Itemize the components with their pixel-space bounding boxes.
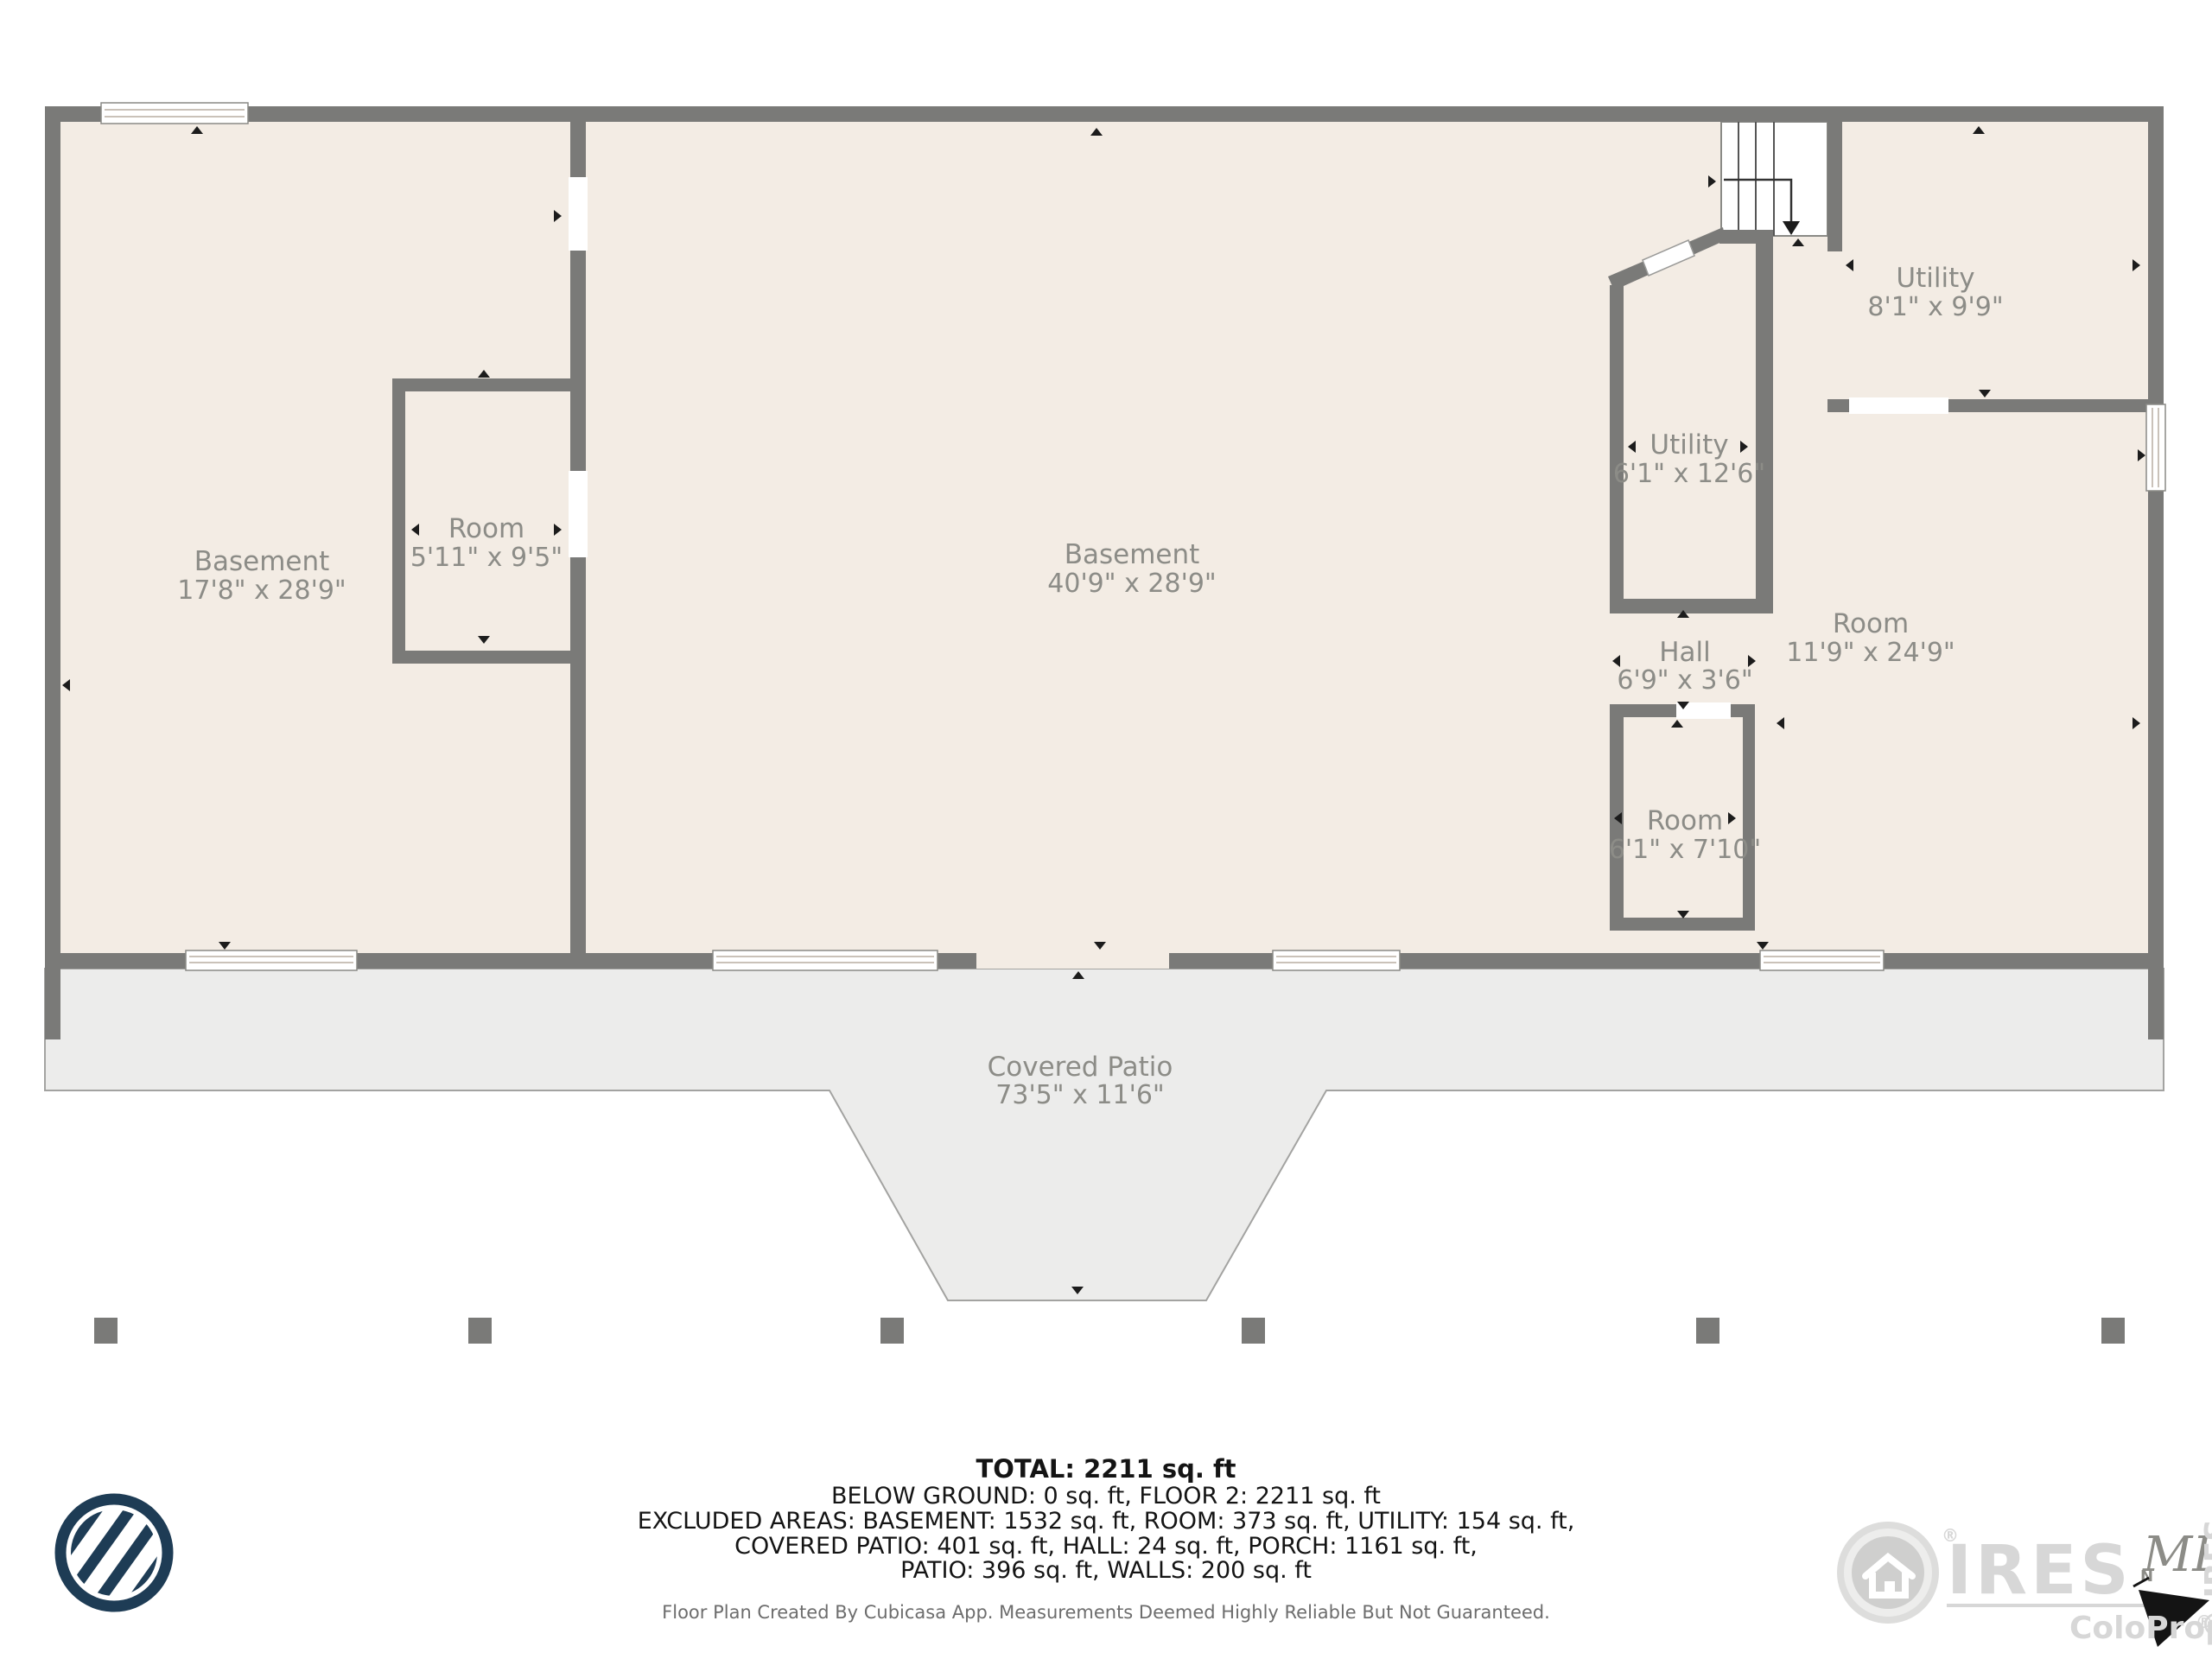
window bbox=[2146, 404, 2165, 491]
ires-logo: ® IRES MLS N ColoProperty.com ® © IRES bbox=[1840, 1519, 2212, 1647]
patio-door-opening bbox=[976, 953, 1169, 969]
room-label-dims: 73'5" x 11'6" bbox=[995, 1080, 1164, 1110]
window bbox=[713, 950, 938, 970]
covered-patio-area bbox=[45, 969, 2164, 1300]
room-label-dims: 5'11" x 9'5" bbox=[410, 543, 563, 573]
room-label-dims: 11'9" x 24'9" bbox=[1786, 638, 1955, 668]
patio-outline bbox=[45, 969, 2164, 1300]
room-label-dims: 6'1" x 7'10" bbox=[1609, 835, 1761, 865]
room-label-dims: 8'1" x 9'9" bbox=[1867, 292, 2003, 322]
area-summary: TOTAL: 2211 sq. ft BELOW GROUND: 0 sq. f… bbox=[638, 1454, 1575, 1623]
window bbox=[1760, 950, 1884, 970]
room-label-dims: 40'9" x 28'9" bbox=[1047, 569, 1216, 599]
summary-line: PATIO: 396 sq. ft, WALLS: 200 sq. ft bbox=[900, 1557, 1312, 1584]
room-label-name: Hall bbox=[1659, 637, 1711, 668]
cubicasa-logo-icon bbox=[36, 1485, 204, 1656]
room-label-dims: 6'9" x 3'6" bbox=[1617, 665, 1752, 696]
summary-footnote: Floor Plan Created By Cubicasa App. Meas… bbox=[662, 1602, 1550, 1623]
room-label-dims: 17'8" x 28'9" bbox=[177, 575, 346, 606]
floor-plan-page: Basement 17'8" x 28'9" Room 5'11" x 9'5"… bbox=[0, 0, 2212, 1659]
summary-line: COVERED PATIO: 401 sq. ft, HALL: 24 sq. … bbox=[734, 1533, 1478, 1560]
coloproperty-text: ColoProperty.com bbox=[2069, 1611, 2212, 1646]
room-label-name: Room bbox=[1647, 805, 1723, 836]
summary-line: BELOW GROUND: 0 sq. ft, FLOOR 2: 2211 sq… bbox=[831, 1483, 1381, 1510]
room-label-name: Covered Patio bbox=[988, 1052, 1173, 1083]
summary-total: TOTAL: 2211 sq. ft bbox=[976, 1454, 1236, 1484]
ires-copyright-vertical: © IRES bbox=[2199, 1519, 2212, 1640]
window bbox=[1273, 950, 1400, 970]
room-label-name: Basement bbox=[194, 546, 330, 577]
room-label-dims: 6'1" x 12'6" bbox=[1613, 459, 1765, 489]
room-label-name: Basement bbox=[1065, 539, 1200, 570]
room-label-name: Room bbox=[448, 513, 524, 544]
room-label-name: Room bbox=[1833, 608, 1909, 639]
floor-plan-canvas: Basement 17'8" x 28'9" Room 5'11" x 9'5"… bbox=[0, 0, 2212, 1659]
ires-wordmark: IRES bbox=[1947, 1532, 2133, 1610]
window bbox=[186, 950, 357, 970]
window bbox=[101, 103, 248, 124]
room-label-name: Utility bbox=[1649, 429, 1728, 461]
room-label-name: Utility bbox=[1896, 263, 1974, 294]
patio-posts bbox=[94, 1318, 2125, 1344]
staircase bbox=[1721, 122, 1827, 236]
ires-house-icon bbox=[1840, 1525, 1935, 1620]
summary-line: EXCLUDED AREAS: BASEMENT: 1532 sq. ft, R… bbox=[638, 1508, 1575, 1535]
